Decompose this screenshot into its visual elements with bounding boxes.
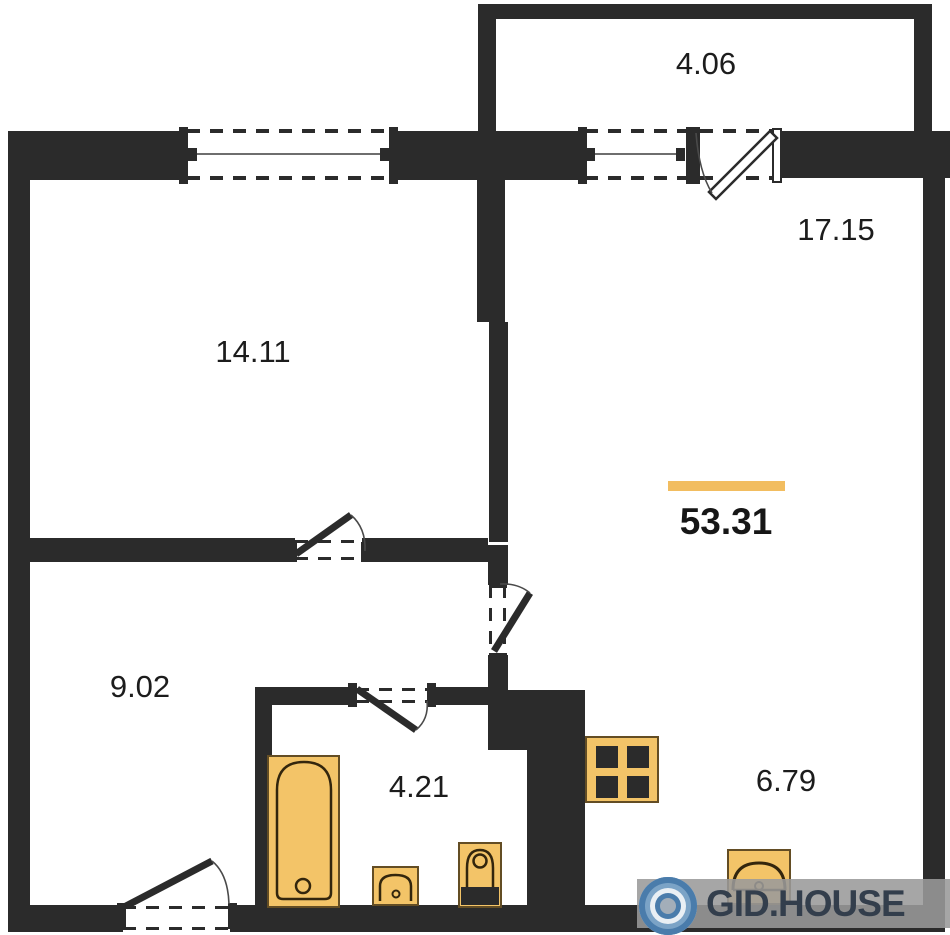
door-opening: [295, 557, 362, 560]
window-jamb: [686, 127, 700, 184]
balcony-door-leaf: [696, 131, 777, 199]
wall-kitchen-divider: [527, 750, 585, 910]
living-area-label: 17.15: [797, 212, 875, 248]
door-jamb: [489, 578, 507, 588]
wall-bedroom-hall-east: [362, 538, 488, 562]
wall-top-northeast: [782, 131, 950, 178]
door-opening: [489, 585, 492, 655]
wall-left-outer: [8, 131, 30, 932]
toilet-tank: [461, 887, 499, 905]
wall-top-northwest: [8, 131, 187, 180]
door-opening: [295, 540, 362, 543]
window-icon: [585, 176, 777, 180]
stove-burner-icon: [596, 746, 618, 768]
window-stop: [188, 148, 197, 161]
wall-balcony-top: [478, 4, 932, 19]
door-jamb: [288, 542, 297, 562]
door-jamb: [427, 683, 436, 707]
wall-bedroom-hall-west: [22, 538, 295, 562]
bedroom-area-label: 14.11: [215, 334, 290, 370]
floor-plan: 4.06 17.15 14.11 9.02 4.21 6.79 53.31 GI…: [0, 0, 950, 935]
door-swing-icon: [357, 689, 427, 730]
wall-balcony-left: [478, 4, 496, 133]
kitchen-area-label: 6.79: [756, 763, 816, 799]
door-swing-icon: [126, 861, 229, 906]
window-icon: [187, 176, 397, 180]
window-stop: [380, 148, 389, 161]
door-opening: [123, 906, 230, 909]
window-pane: [193, 153, 391, 155]
window-jamb: [389, 127, 398, 184]
door-jamb: [228, 903, 237, 929]
stove-icon: [585, 736, 659, 803]
wall-divider-lower: [489, 322, 508, 542]
window-stop: [676, 148, 685, 161]
bathroom-area-label: 4.21: [389, 769, 449, 805]
stove-burner-icon: [627, 776, 649, 798]
door-opening: [123, 927, 230, 930]
wall-divider-upper: [477, 178, 505, 322]
door-swing-icon: [296, 515, 365, 554]
window-stop: [586, 148, 595, 161]
window-icon: [585, 129, 777, 133]
door-opening: [503, 585, 506, 655]
hallway-area-label: 9.02: [110, 669, 170, 705]
wall-balcony-right: [914, 4, 932, 133]
wall-top-middle: [397, 131, 585, 180]
wall-center-block: [488, 690, 585, 750]
door-jamb: [489, 653, 507, 663]
door-opening: [356, 700, 428, 703]
window-pane: [590, 153, 683, 155]
door-swing-icon: [494, 584, 530, 651]
wall-bathroom-top-east: [428, 687, 488, 705]
gid-house-logo-icon: [639, 877, 697, 935]
stove-burner-icon: [596, 776, 618, 798]
door-opening: [356, 688, 428, 691]
balcony-area-label: 4.06: [676, 46, 736, 82]
total-area-label: 53.31: [680, 501, 773, 543]
wall-bottom-west: [8, 905, 123, 932]
window-icon: [187, 129, 397, 133]
sink-icon: [372, 866, 419, 906]
window-jamb: [179, 127, 188, 184]
total-area-accent-bar: [668, 481, 785, 491]
stove-burner-icon: [627, 746, 649, 768]
door-jamb: [348, 683, 357, 707]
watermark-brand-text: GID.HOUSE: [706, 883, 905, 925]
door-jamb: [117, 903, 126, 929]
bathtub-icon: [267, 755, 340, 908]
wall-right-outer: [923, 178, 945, 932]
door-jamb: [361, 542, 370, 562]
balcony-door-frame: [772, 128, 782, 183]
